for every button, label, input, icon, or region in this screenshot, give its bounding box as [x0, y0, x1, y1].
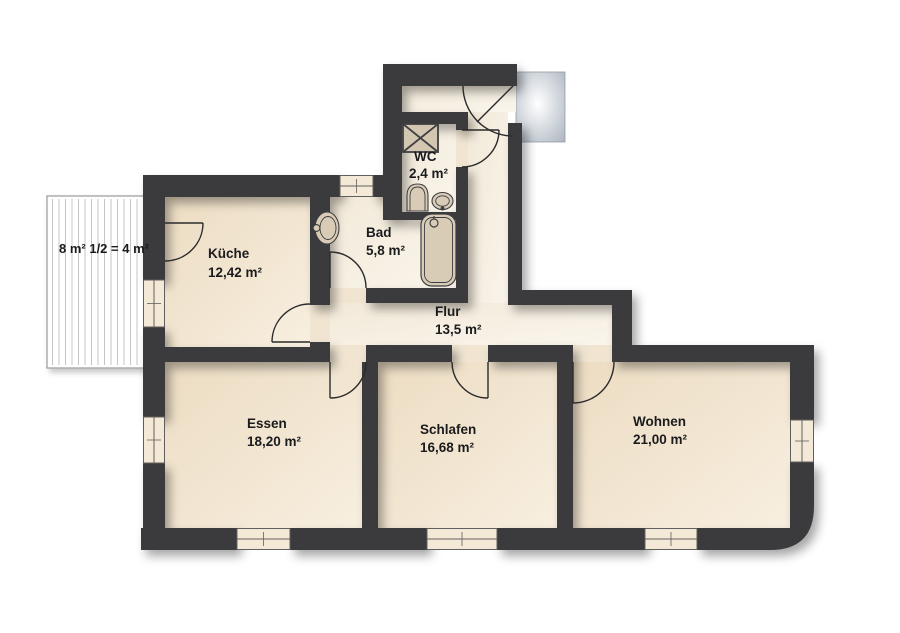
window-wohnen-right [791, 420, 814, 462]
room-vestibule [402, 86, 516, 112]
window-essen-bottom [237, 529, 290, 550]
wc-sink-icon [432, 193, 453, 210]
window-schlafen-bottom [427, 529, 497, 550]
window-essen-left [144, 417, 165, 463]
window-kueche-left [144, 280, 165, 327]
bathtub-icon [421, 214, 456, 286]
window-wohnen-bottom [645, 529, 697, 550]
window-bad-top [340, 176, 373, 197]
floorplan-drawing: Küche 12,42 m² WC 2,4 m² Bad 5,8 m² Flur… [0, 0, 900, 633]
toilet-icon [407, 184, 428, 211]
balcony [47, 196, 157, 368]
floorplan-page: Küche 12,42 m² WC 2,4 m² Bad 5,8 m² Flur… [0, 0, 900, 633]
vent-shaft-icon [403, 124, 438, 152]
balcony-label: 8 m² 1/2 = 4 m² [59, 241, 150, 256]
stair-landing [516, 72, 565, 142]
balcony-hatch [50, 199, 154, 365]
